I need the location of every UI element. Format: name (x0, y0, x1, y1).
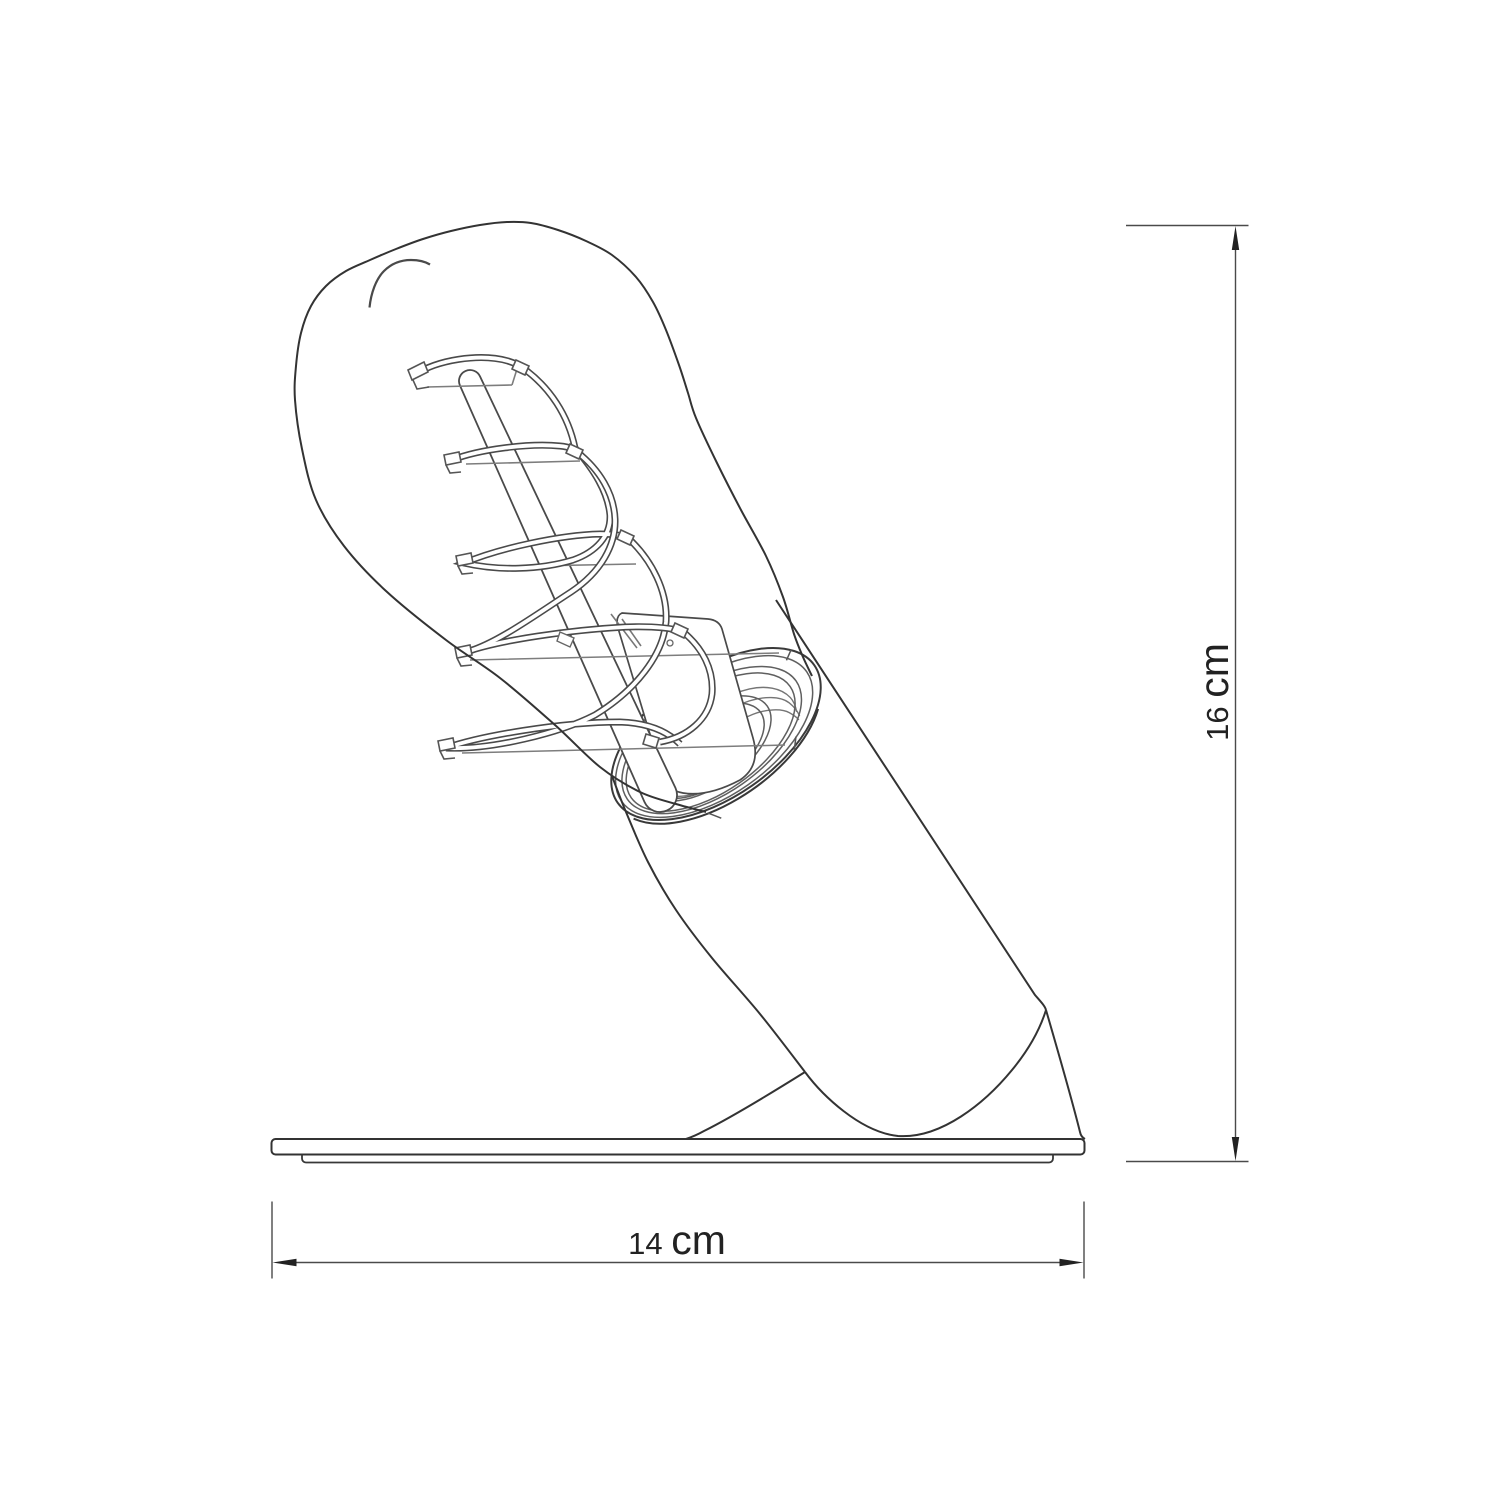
svg-text:16 cm: 16 cm (1191, 643, 1237, 741)
svg-text:14 cm: 14 cm (628, 1217, 726, 1263)
